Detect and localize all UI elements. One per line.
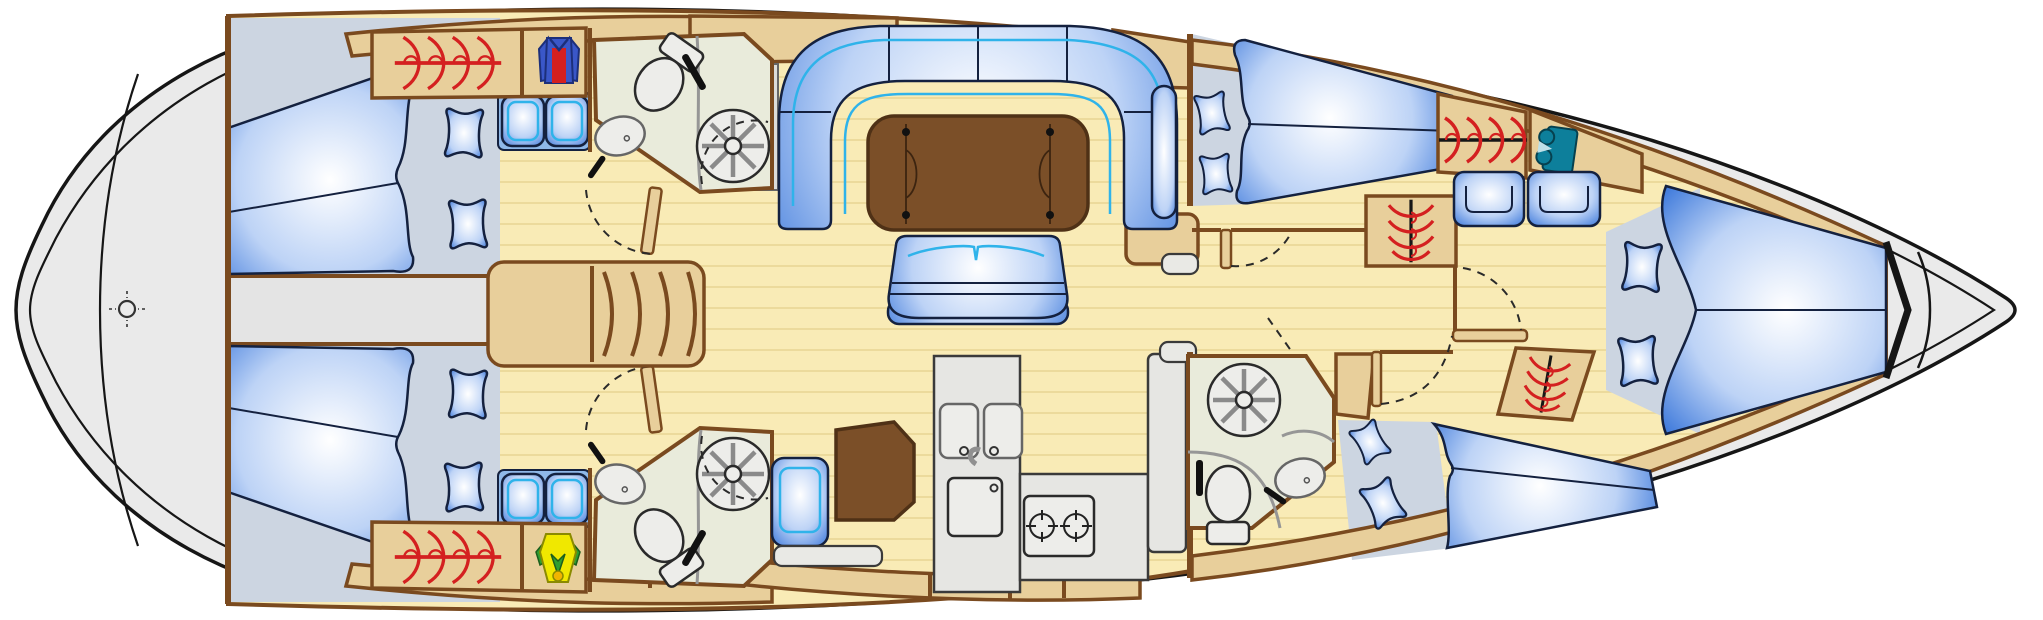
pillow	[449, 370, 487, 419]
nav-step	[774, 546, 882, 566]
settee-bolster	[1152, 86, 1176, 218]
pillow	[445, 463, 483, 512]
fridge-icon	[948, 478, 1002, 536]
stove-icon	[1024, 496, 1094, 556]
floor-plan-svg	[0, 0, 2043, 620]
cabin-seat	[498, 92, 590, 150]
chart-table	[836, 422, 914, 520]
cabin-seat	[498, 470, 590, 528]
bench-seat	[1454, 172, 1524, 226]
shower-icon	[1208, 364, 1280, 436]
step	[1162, 254, 1198, 274]
aft-corridor	[228, 276, 490, 344]
pillow	[449, 200, 487, 249]
companionway	[488, 262, 704, 366]
salon-table	[868, 116, 1088, 230]
wardrobe-shirt-icon	[539, 38, 579, 83]
pillow	[445, 109, 483, 158]
pillow	[1622, 242, 1662, 292]
cabin-cabinet	[1336, 354, 1374, 418]
pillow	[1618, 336, 1658, 386]
salon-bench	[888, 236, 1068, 324]
pillow	[1199, 154, 1232, 195]
bench-seat	[1528, 172, 1600, 226]
toilet-icon	[1206, 466, 1250, 544]
yacht-floor-plan	[0, 0, 2043, 620]
